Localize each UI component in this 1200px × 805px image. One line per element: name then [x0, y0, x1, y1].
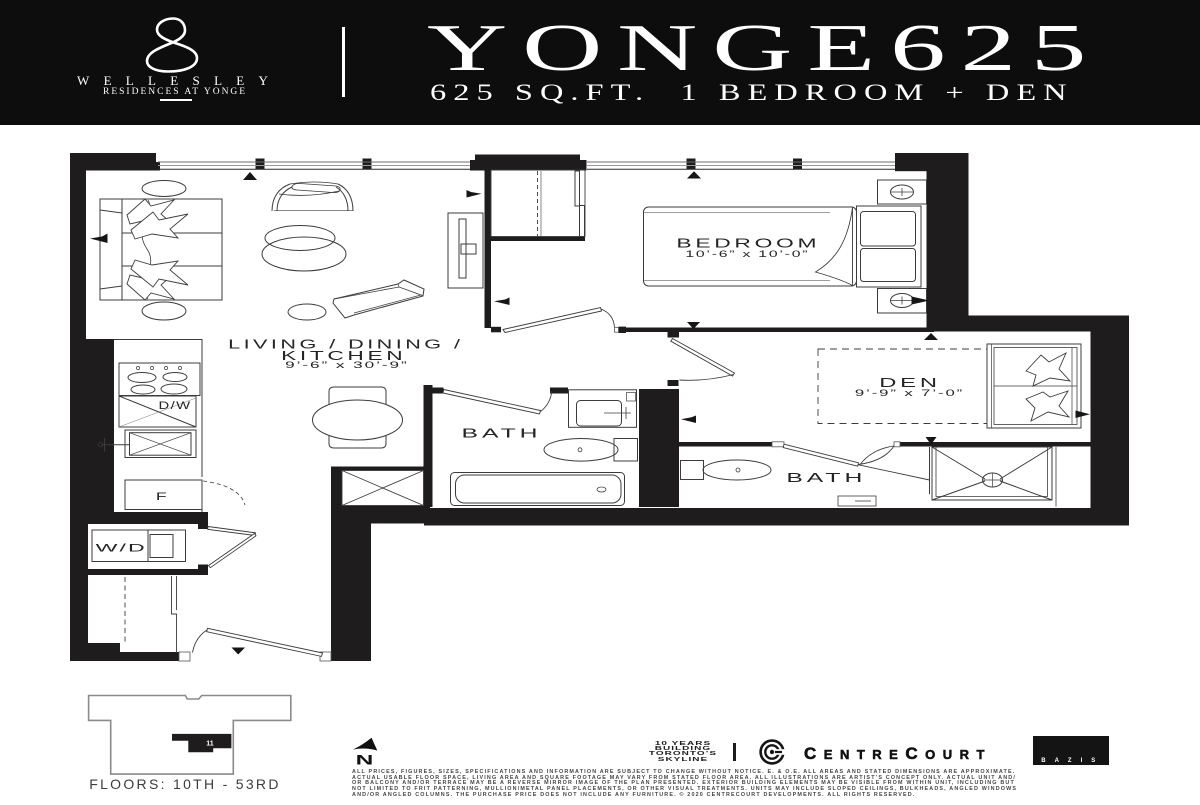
svg-text:BATH: BATH [462, 426, 542, 440]
svg-text:N: N [356, 753, 374, 768]
svg-text:D/W: D/W [159, 399, 192, 412]
svg-text:11: 11 [206, 741, 214, 748]
svg-text:9’-6” x 30’-9”: 9’-6” x 30’-9” [285, 360, 409, 370]
svg-text:W/D: W/D [96, 542, 147, 554]
svg-text:FLOORS: 10TH - 53RD: FLOORS: 10TH - 53RD [89, 776, 281, 792]
svg-text:BATH: BATH [786, 471, 866, 485]
svg-text:10’-6” x 10’-0”: 10’-6” x 10’-0” [685, 249, 809, 259]
svg-text:F: F [156, 491, 168, 503]
svg-text:9’-9” x 7’-0”: 9’-9” x 7’-0” [855, 388, 964, 398]
